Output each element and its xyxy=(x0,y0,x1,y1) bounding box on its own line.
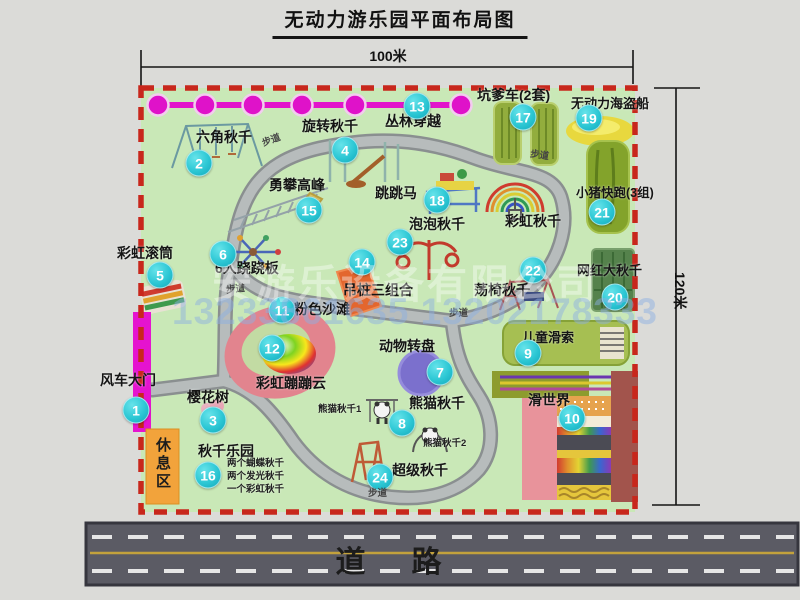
piggy-run-icon xyxy=(587,141,629,233)
big-net-swing-icon xyxy=(592,249,634,311)
rest-area-label: 休息区 xyxy=(152,437,173,491)
rainbow-cloud-icon xyxy=(262,334,316,374)
width-dimension-label: 100米 xyxy=(369,46,406,66)
park-layout-map: 无动力游乐园平面布局图 100米 120米 xyxy=(0,0,800,600)
animal-turntable-icon xyxy=(399,351,443,395)
height-dimension-label: 120米 xyxy=(670,272,690,309)
page-title: 无动力游乐园平面布局图 xyxy=(272,5,527,39)
kids-zipline-icon xyxy=(503,321,629,365)
road-label: 道路 xyxy=(313,537,488,581)
